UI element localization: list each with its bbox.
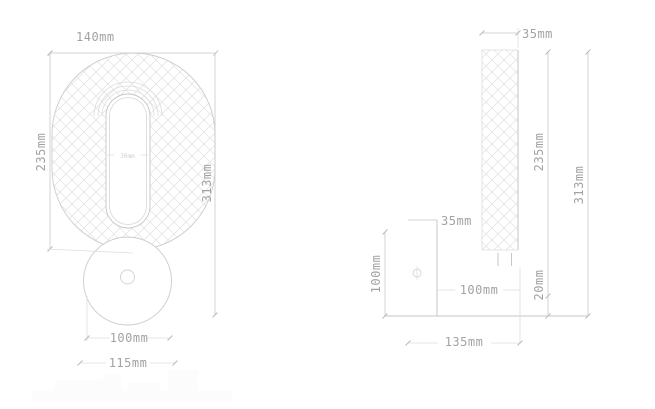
dim-side-overall-height-label: 313mm: [572, 166, 586, 205]
canopy-circle: [84, 237, 172, 325]
dim-projection: 100mm: [437, 283, 520, 297]
dim-canopy-width: 115mm: [78, 356, 178, 370]
watermark: [32, 370, 232, 402]
dim-plate-height: 100mm: [369, 230, 388, 319]
dim-projection-label: 100mm: [460, 283, 499, 297]
dim-canopy-diameter-label: 100mm: [110, 331, 149, 345]
dim-side-overall-height: 313mm: [572, 50, 591, 319]
dim-total-depth-label: 135mm: [445, 335, 484, 349]
dim-total-depth: 135mm: [406, 268, 523, 349]
dim-front-overall-height-label: 313mm: [200, 164, 214, 203]
dimension-drawing: 30mm 140mm 235mm 313mm: [0, 0, 655, 409]
diffuser-slot-outer: [106, 94, 150, 228]
technical-drawing-page: 30mm 140mm 235mm 313mm: [0, 0, 655, 409]
shade-side-profile: [482, 50, 518, 250]
dim-front-width: 140mm: [48, 30, 218, 56]
dim-canopy-width-label: 115mm: [109, 356, 148, 370]
dim-plate-thickness-label: 35mm: [441, 214, 472, 228]
dim-front-width-label: 140mm: [76, 30, 115, 44]
dim-side-shade-height-label: 235mm: [532, 133, 546, 172]
side-view: 35mm 235mm 20mm 313mm: [369, 27, 591, 349]
mount-stem: [498, 253, 512, 266]
dim-gap-label: 20mm: [532, 270, 546, 301]
dim-plate-height-label: 100mm: [369, 255, 383, 294]
dim-front-shade-height-label: 235mm: [34, 133, 48, 172]
front-view: 30mm 140mm 235mm 313mm: [34, 30, 218, 370]
dim-shade-thickness-label: 35mm: [522, 27, 553, 41]
dim-shade-thickness: 35mm: [480, 27, 553, 48]
dim-slot-width-label: 30mm: [120, 153, 135, 160]
